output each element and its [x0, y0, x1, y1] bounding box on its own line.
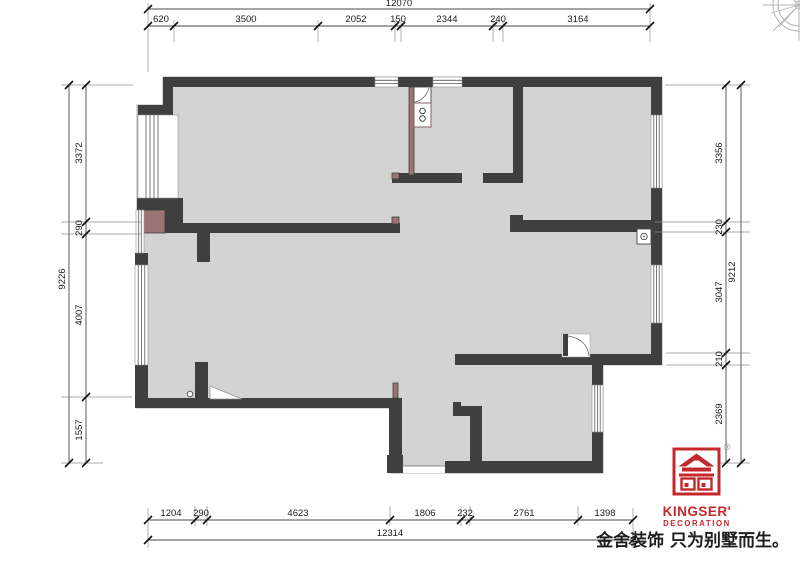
registered-mark: ® [724, 442, 731, 452]
kingser-wordmark: KINGSER' [663, 504, 732, 519]
dim-label: 1398 [594, 508, 615, 519]
floor-plan-document: 12070 620 3500 2052 150 2344 240 3164 92… [0, 0, 800, 575]
left-dimensions: 9226 3372 290 4007 1557 [57, 81, 141, 467]
dim-top-total: 12070 [386, 0, 412, 9]
kingser-logo-mark [674, 449, 719, 494]
door-knob-circle [187, 391, 193, 397]
dim-label: 4007 [74, 304, 85, 325]
dim-label: 2761 [513, 508, 534, 519]
compass-icon [763, 0, 800, 41]
outlet-fixture [637, 229, 651, 244]
top-dimensions: 12070 620 3500 2052 150 2344 240 3164 [144, 0, 654, 72]
dim-label: 620 [153, 14, 169, 25]
dim-label: 2369 [714, 403, 725, 424]
swing-door [562, 334, 590, 357]
dim-label: 4623 [287, 508, 308, 519]
dim-label: 290 [193, 508, 209, 519]
dim-label: 210 [714, 351, 725, 367]
window-left-narrow [136, 210, 144, 253]
dim-label: 2344 [436, 14, 457, 25]
window-left-lower [135, 265, 148, 365]
dim-label: 232 [457, 508, 473, 519]
dim-right-total: 9212 [727, 261, 738, 282]
dim-label: 3047 [714, 281, 725, 302]
dim-label: 1557 [74, 419, 85, 440]
dim-label: 1806 [414, 508, 435, 519]
dim-label: 3500 [235, 14, 256, 25]
kitchen-flue-fixture [414, 87, 431, 127]
wall-segment [163, 77, 662, 87]
dim-label: 290 [74, 220, 85, 236]
dim-label: 230 [714, 219, 725, 235]
dim-bottom-total: 12314 [377, 528, 403, 539]
window-right-lower [651, 265, 662, 323]
dim-label: 150 [390, 14, 406, 25]
dim-label: 3372 [74, 142, 85, 163]
decoration-wordmark: DECORATION [663, 519, 731, 528]
dim-label: 2052 [345, 14, 366, 25]
window-extension [592, 385, 603, 432]
dim-label: 1204 [160, 508, 181, 519]
right-dimensions: 9212 3356 230 3047 210 2369 [655, 81, 750, 467]
dim-label: 240 [490, 14, 506, 25]
floor-plan-drawing: 12070 620 3500 2052 150 2344 240 3164 92… [0, 0, 800, 575]
dim-label: 3356 [714, 142, 725, 163]
dim-left-total: 9226 [57, 268, 68, 289]
dim-label: 3164 [567, 14, 588, 25]
brand-logo: ® KINGSER' DECORATION [663, 442, 732, 528]
brand-slogan: 金舍装饰 只为别墅而生。 [595, 530, 789, 551]
bottom-dimensions: 1204 290 4623 1806 232 2761 1398 12314 [144, 506, 637, 548]
window-left-bay [138, 115, 178, 198]
window-top-2 [433, 77, 462, 87]
window-top-1 [375, 77, 398, 87]
window-right-upper [651, 115, 662, 188]
